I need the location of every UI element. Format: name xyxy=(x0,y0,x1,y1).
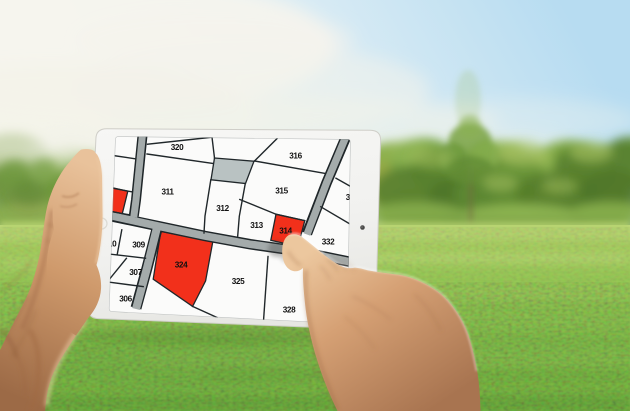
svg-text:332: 332 xyxy=(322,237,335,246)
svg-text:316: 316 xyxy=(289,151,302,160)
svg-text:325: 325 xyxy=(232,277,245,286)
svg-text:313: 313 xyxy=(250,221,263,230)
svg-text:328: 328 xyxy=(283,305,296,314)
svg-text:312: 312 xyxy=(216,204,229,213)
svg-text:307: 307 xyxy=(129,268,142,277)
svg-text:315: 315 xyxy=(275,186,288,195)
svg-text:306: 306 xyxy=(119,294,132,303)
svg-text:311: 311 xyxy=(161,187,174,196)
svg-text:309: 309 xyxy=(132,240,145,249)
svg-text:324: 324 xyxy=(175,260,188,269)
svg-text:320: 320 xyxy=(171,143,184,152)
